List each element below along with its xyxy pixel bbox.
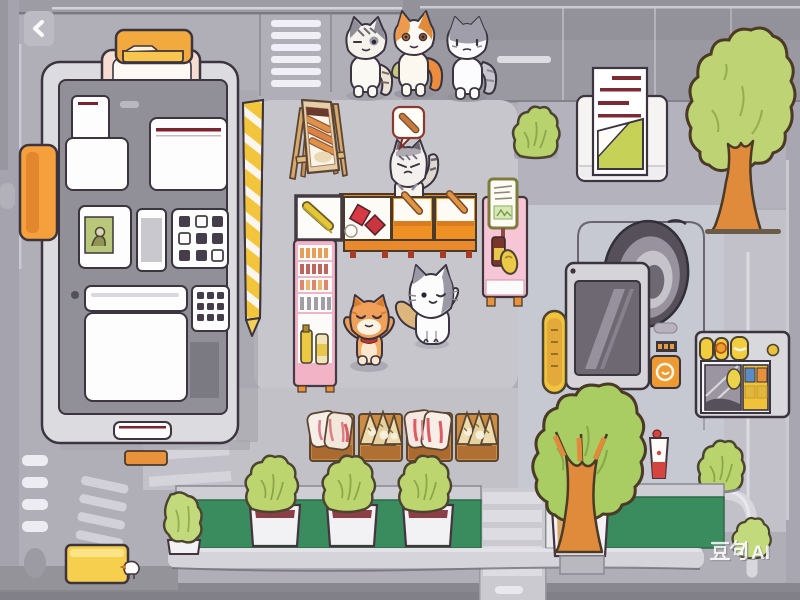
- svg-text:AI: AI: [751, 543, 770, 564]
